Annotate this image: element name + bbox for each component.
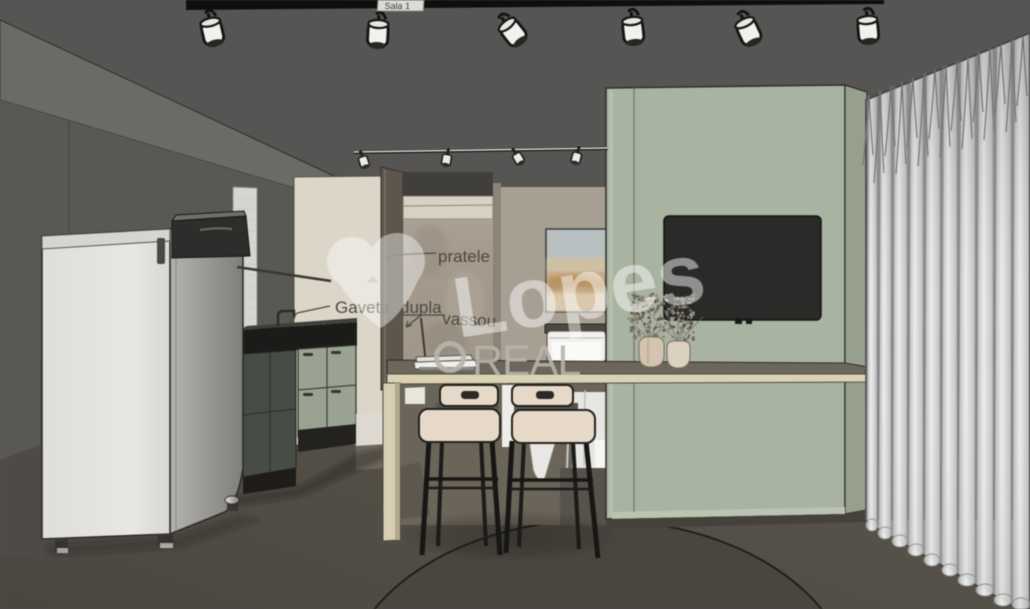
svg-text:REAL: REAL (472, 337, 580, 385)
svg-text:Sala 1: Sala 1 (384, 1, 410, 11)
